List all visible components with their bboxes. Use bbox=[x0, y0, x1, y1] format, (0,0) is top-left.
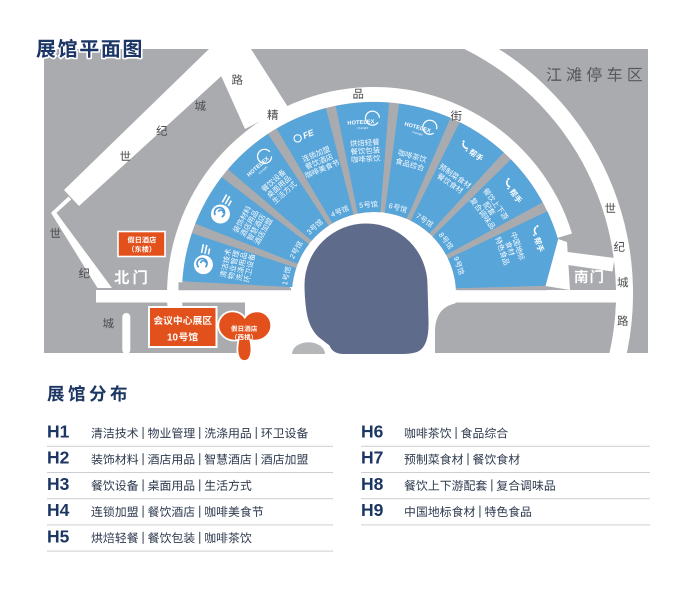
svg-text:10: 10 bbox=[167, 333, 178, 344]
svg-text:H8: H8 bbox=[361, 474, 384, 494]
svg-text:H4: H4 bbox=[47, 500, 70, 520]
svg-text:H1: H1 bbox=[47, 422, 70, 442]
svg-text:H5: H5 bbox=[47, 526, 70, 546]
svg-text:H3: H3 bbox=[47, 474, 70, 494]
svg-text:5: 5 bbox=[359, 201, 364, 210]
svg-text:H2: H2 bbox=[47, 448, 70, 468]
svg-text:H9: H9 bbox=[361, 500, 384, 520]
svg-text:Chengdu: Chengdu bbox=[357, 126, 369, 131]
svg-text:H7: H7 bbox=[361, 448, 383, 468]
svg-text:H6: H6 bbox=[361, 422, 384, 442]
